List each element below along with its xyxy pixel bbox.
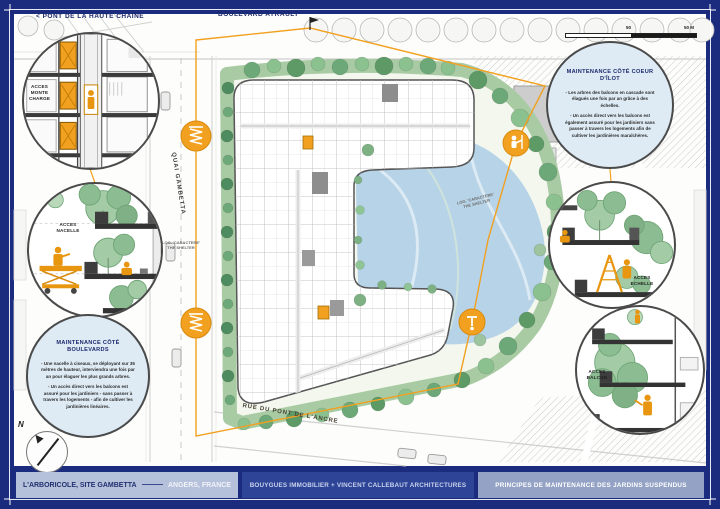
client-architect-box: BOUYGUES IMMOBILIER + VINCENT CALLEBAUT … [242, 472, 474, 498]
echelle-label: ACCES ECHELLE [624, 275, 660, 287]
boulevards-paragraph-1: - Une nacelle à ciseaux, se déployant su… [41, 361, 135, 381]
title-bar: L'ARBORICOLE, SITE GAMBETTA ANGERS, FRAN… [16, 472, 704, 498]
pont-haute-chaine-label: < PONT DE LA HAUTE CHAÎNE [36, 13, 144, 20]
coeur-ilot-paragraph-2: - Un accès direct vers les balcons est é… [562, 113, 658, 139]
title-project-box: L'ARBORICOLE, SITE GAMBETTA ANGERS, FRAN… [16, 472, 238, 498]
north-arrow [26, 431, 68, 473]
drawing-sheet: < PONT DE LA HAUTE CHAÎNE BOULEVARD AYRA… [0, 0, 720, 509]
nacelle-label: ACCES NACELLE [51, 222, 85, 234]
lift-badge-icon [181, 121, 211, 151]
callout-echelle: ACCES ECHELLE [548, 181, 676, 309]
boulevards-title: MAINTENANCE CÔTÉ BOULEVARDS [41, 340, 135, 355]
boulevards-paragraph-2: - Un accès direct vers les balcons est a… [41, 384, 135, 410]
callout-balcon: ACCES BALCON [575, 305, 705, 435]
balcon-label: ACCES BALCON [583, 369, 611, 381]
callout-nacelle: ACCES NACELLE [27, 182, 163, 318]
sheet-title-box: PRINCIPES DE MAINTENANCE DES JARDINS SUS… [478, 472, 704, 498]
title-divider-line [142, 484, 163, 485]
lift-badge-icon [181, 308, 211, 338]
coeur-ilot-paragraph-1: - Les arbres des balcons en cascade sont… [562, 90, 658, 110]
scale-mid-value: 50 [626, 25, 631, 30]
project-location: ANGERS, FRANCE [168, 482, 231, 489]
coeur-ilot-title: MAINTENANCE CÔTÉ COEUR D'ÎLOT [562, 69, 658, 84]
scissor-lift [40, 266, 82, 294]
scale-bar [565, 33, 697, 38]
callout-maintenance-coeur-ilot: MAINTENANCE CÔTÉ COEUR D'ÎLOT - Les arbr… [546, 41, 674, 169]
monte-charge-label: ACCES MONTE CHARGE [29, 84, 50, 102]
scale-end-value: 50 M [684, 25, 694, 30]
valve-badge-icon [459, 309, 485, 335]
north-label: N [18, 420, 24, 429]
worker-badge-icon [503, 130, 529, 156]
project-name: L'ARBORICOLE, SITE GAMBETTA [23, 482, 137, 489]
boulevard-ayrault-label: BOULEVARD AYRAULT [218, 11, 299, 18]
callout-monte-charge: ACCES MONTE CHARGE [22, 32, 160, 170]
shelter-tag-label: LOG. 'CARACTERE' THE SHELTER [160, 240, 202, 250]
callout-maintenance-boulevards: MAINTENANCE CÔTÉ BOULEVARDS - Une nacell… [26, 314, 150, 438]
